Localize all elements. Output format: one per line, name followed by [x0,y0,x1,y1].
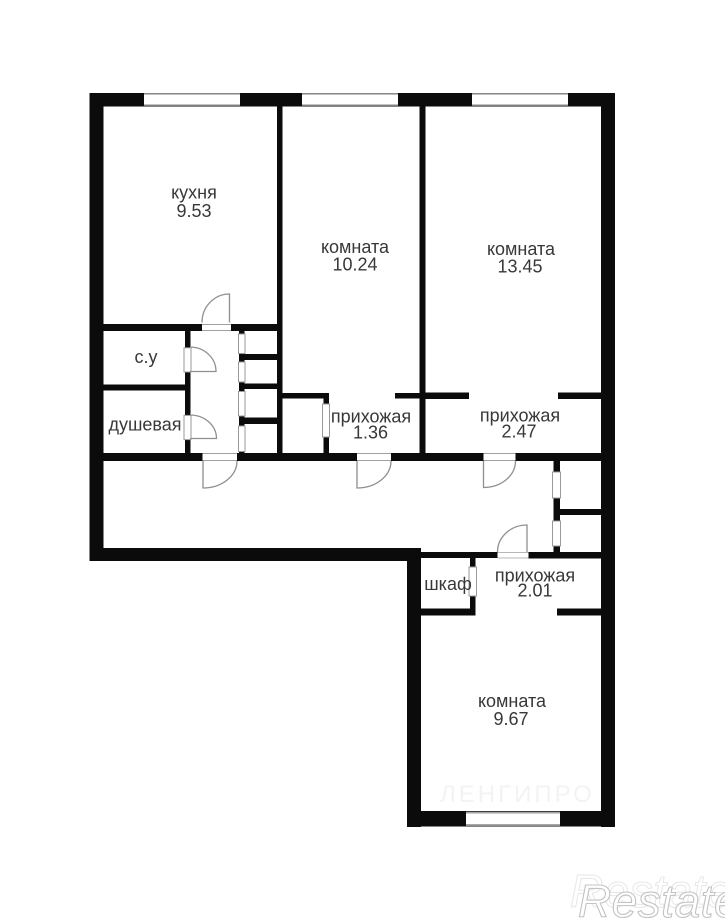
svg-text:душевая: душевая [108,415,181,435]
svg-text:2.01: 2.01 [517,581,552,601]
svg-text:10.24: 10.24 [332,255,377,275]
svg-text:шкаф: шкаф [424,574,472,594]
svg-text:кухня: кухня [171,183,217,203]
svg-text:13.45: 13.45 [497,257,542,277]
svg-text:2.47: 2.47 [501,422,536,442]
svg-text:комната: комната [478,691,547,711]
svg-text:1.36: 1.36 [353,423,388,443]
svg-text:ЛЕНГИПРО: ЛЕНГИПРО [440,781,595,808]
svg-text:Restate: Restate [578,875,725,921]
svg-text:9.53: 9.53 [176,201,211,221]
svg-text:9.67: 9.67 [493,709,528,729]
svg-text:с.у: с.у [134,347,157,367]
